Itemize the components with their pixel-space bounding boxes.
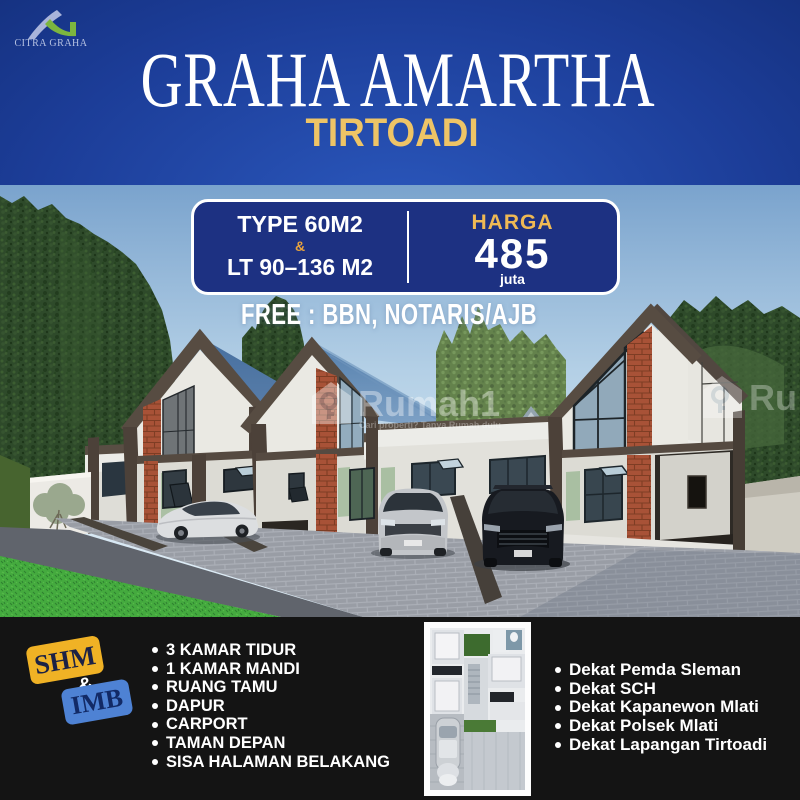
svg-text:Cari properti? Tanya Rumah dul: Cari properti? Tanya Rumah dulu: [359, 420, 501, 430]
svg-text:Ru: Ru: [749, 377, 797, 418]
svg-text:Rumah1: Rumah1: [358, 383, 500, 424]
